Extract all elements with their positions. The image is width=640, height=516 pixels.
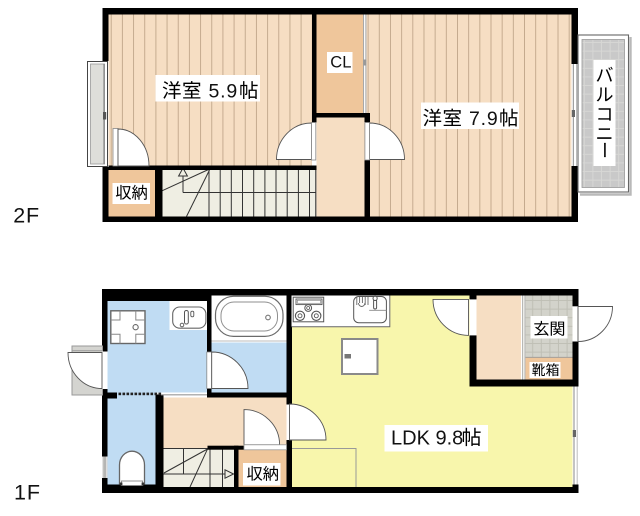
svg-text:5.9: 5.9 <box>209 81 239 103</box>
svg-text:CL: CL <box>330 53 351 71</box>
svg-text:2F: 2F <box>13 203 40 227</box>
svg-text:LDK 9.8: LDK 9.8 <box>391 428 463 450</box>
svg-text:7.9: 7.9 <box>469 108 499 130</box>
svg-text:1F: 1F <box>14 481 41 505</box>
